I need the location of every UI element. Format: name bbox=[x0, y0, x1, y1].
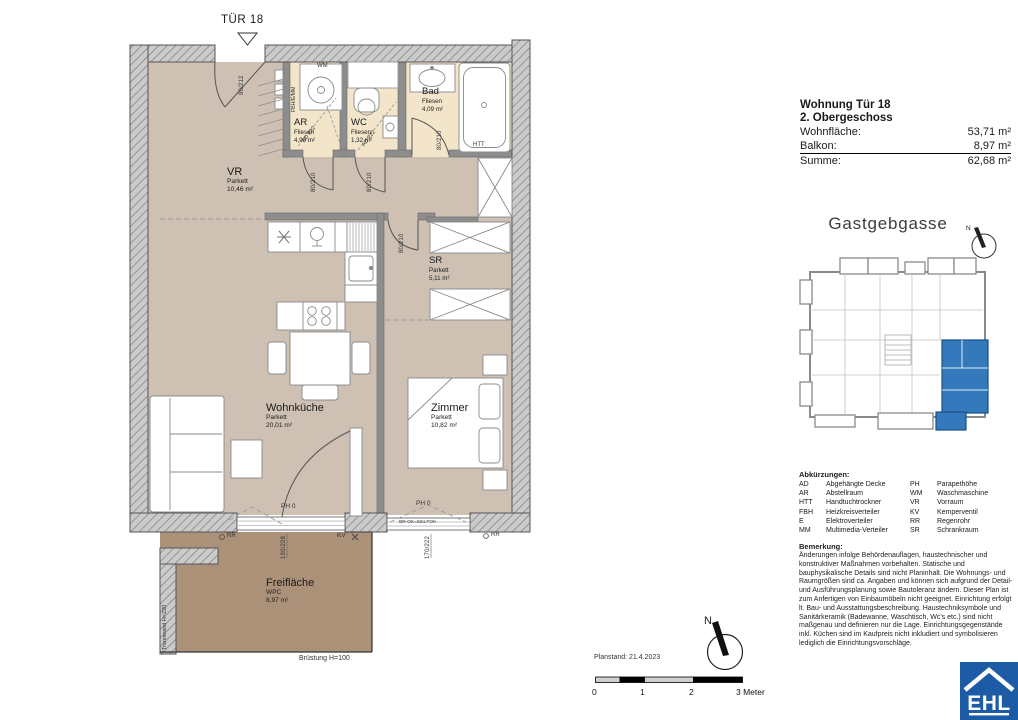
wc-door-dim: 80/210 bbox=[367, 172, 373, 192]
nightstand-1 bbox=[483, 355, 507, 375]
terrace-door-leaf bbox=[350, 428, 362, 516]
ph-label-right: PH 0 bbox=[416, 500, 430, 507]
key-plan bbox=[795, 250, 1018, 465]
brok-label: BR-OK=82ü.FOK bbox=[399, 520, 436, 525]
fbh-label: FBH/E/MM bbox=[291, 87, 297, 112]
rr-circle-right bbox=[484, 534, 489, 539]
rr-label-left: RR bbox=[227, 533, 236, 539]
key-plan-stairs bbox=[885, 335, 911, 365]
scale-label-0: 0 bbox=[592, 687, 597, 697]
room-label-zimmer: Zimmer Parkett 10,82 m² bbox=[431, 402, 468, 430]
kv-label: KV bbox=[337, 532, 346, 539]
ehl-logo: EHL bbox=[960, 662, 1018, 720]
bathtub-symbol bbox=[459, 63, 510, 152]
entry-dim: 90/212 bbox=[239, 75, 245, 95]
abbr-col-left: ADAbgehängte Decke ARAbstellraum HTTHand… bbox=[799, 480, 902, 535]
wm-label: WM bbox=[317, 63, 328, 69]
scale-bar bbox=[595, 676, 745, 686]
room-label-vr: VR Parkett 10,46 m² bbox=[227, 166, 253, 194]
scale-label-2: 2 bbox=[689, 687, 694, 697]
floorplan-page: TÜR 18 VR Parkett 10,46 m² AR Fliesen 4,… bbox=[0, 0, 1018, 720]
stove-symbol bbox=[303, 302, 337, 330]
logo-text: EHL bbox=[967, 692, 1011, 715]
bad-door-dim: 80/210 bbox=[437, 130, 443, 150]
nightstand-2 bbox=[483, 470, 507, 490]
wardrobe-sr-2 bbox=[430, 289, 510, 320]
room-label-freiflaeche: Freifläche WPC 8,97 m² bbox=[266, 577, 314, 605]
htt-label: HTT bbox=[473, 142, 485, 148]
entry-door-label: TÜR 18 bbox=[221, 14, 264, 26]
shaft-niche bbox=[348, 62, 398, 88]
wardrobe-tall bbox=[478, 158, 512, 217]
scale-label-3: 3 Meter bbox=[736, 687, 765, 697]
wardrobe-sr-1 bbox=[430, 222, 510, 253]
ar-door-dim: 80/210 bbox=[311, 172, 317, 192]
wc-basin-symbol bbox=[383, 116, 398, 138]
abbr-col-right: PHParapethöhe WMWaschmaschine VRVorraum … bbox=[910, 480, 1013, 535]
trennwand-label: Trennwand H=220 bbox=[162, 605, 168, 650]
compass-small-n: N bbox=[966, 225, 971, 232]
compass-large-n: N bbox=[704, 615, 712, 627]
info-title-line1: Wohnung Tür 18 bbox=[800, 99, 1011, 112]
apartment-info-panel: Wohnung Tür 18 2. Obergeschoss Wohnfläch… bbox=[800, 99, 1011, 168]
entry-triangle-marker bbox=[238, 33, 257, 45]
scale-label-1: 1 bbox=[640, 687, 645, 697]
ph-label-left: PH 0 bbox=[281, 503, 295, 510]
bruestung-label: Brüstung H=100 bbox=[299, 655, 350, 662]
coffee-table bbox=[231, 440, 262, 478]
remark-text: Änderungen infolge Behördenauflagen, hau… bbox=[799, 552, 1015, 649]
window-dim-left: 190/228 bbox=[281, 536, 287, 559]
sr-door-dim: 80/210 bbox=[399, 233, 405, 253]
floor-plan-drawing bbox=[0, 0, 780, 720]
washing-machine-symbol bbox=[300, 64, 342, 110]
info-row-wohnflaeche: Wohnfläche: 53,71 m² bbox=[800, 125, 1011, 139]
info-title-line2: 2. Obergeschoss bbox=[800, 112, 1011, 125]
remark-block: Bemerkung: Änderungen infolge Behördenau… bbox=[799, 542, 1015, 649]
planstand-label: Planstand: 21.4.2023 bbox=[594, 654, 660, 661]
street-name: Gastgebgasse bbox=[798, 214, 978, 234]
info-row-summe: Summe: 62,68 m² bbox=[800, 154, 1011, 168]
rr-label-right: RR bbox=[491, 532, 500, 538]
info-row-balkon: Balkon: 8,97 m² bbox=[800, 139, 1011, 154]
toilet-symbol bbox=[354, 88, 379, 115]
abbreviations-legend: Abkürzungen: ADAbgehängte Decke ARAbstel… bbox=[799, 470, 1013, 535]
window-dim-right: 170/222 bbox=[425, 536, 431, 559]
room-label-sr: SR Parkett 5,11 m² bbox=[429, 256, 450, 283]
sofa-symbol bbox=[150, 396, 224, 512]
room-label-wohnkueche: Wohnküche Parkett 20,01 m² bbox=[266, 402, 324, 430]
room-label-bad: Bad Fliesen 4,09 m² bbox=[422, 87, 443, 114]
